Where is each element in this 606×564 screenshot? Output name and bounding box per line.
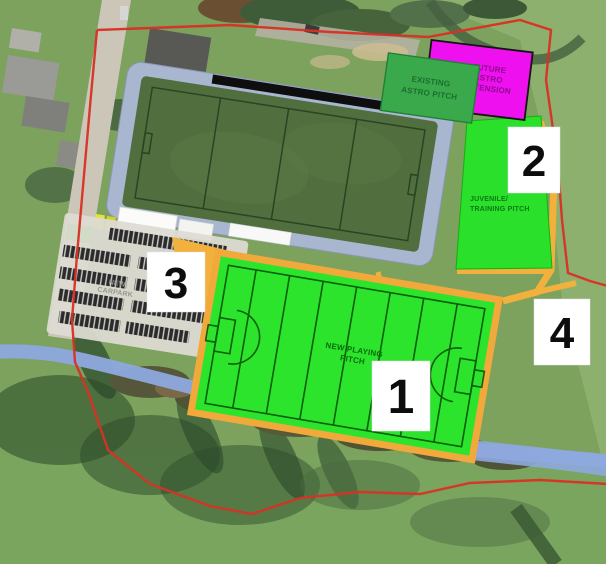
marker-1-number: 1 — [388, 371, 415, 424]
site-plan-svg: NEW CARPARK JUVENILE/ TRAINING PITCH FUT… — [0, 0, 606, 564]
car-icon — [120, 6, 128, 20]
marker-4-number: 4 — [550, 309, 575, 358]
marker-1: 1 — [372, 361, 430, 431]
juvenile-label-line1: JUVENILE/ — [470, 196, 508, 203]
marker-4: 4 — [534, 299, 590, 365]
juvenile-label-line2: TRAINING PITCH — [470, 206, 530, 213]
marker-3: 3 — [147, 252, 205, 312]
marker-2-number: 2 — [522, 137, 546, 186]
marker-3-number: 3 — [164, 259, 188, 308]
marker-2: 2 — [508, 127, 560, 193]
existing-astro-pitch: EXISTING ASTRO PITCH — [380, 53, 479, 123]
aerial-site-plan: NEW CARPARK JUVENILE/ TRAINING PITCH FUT… — [0, 0, 606, 564]
